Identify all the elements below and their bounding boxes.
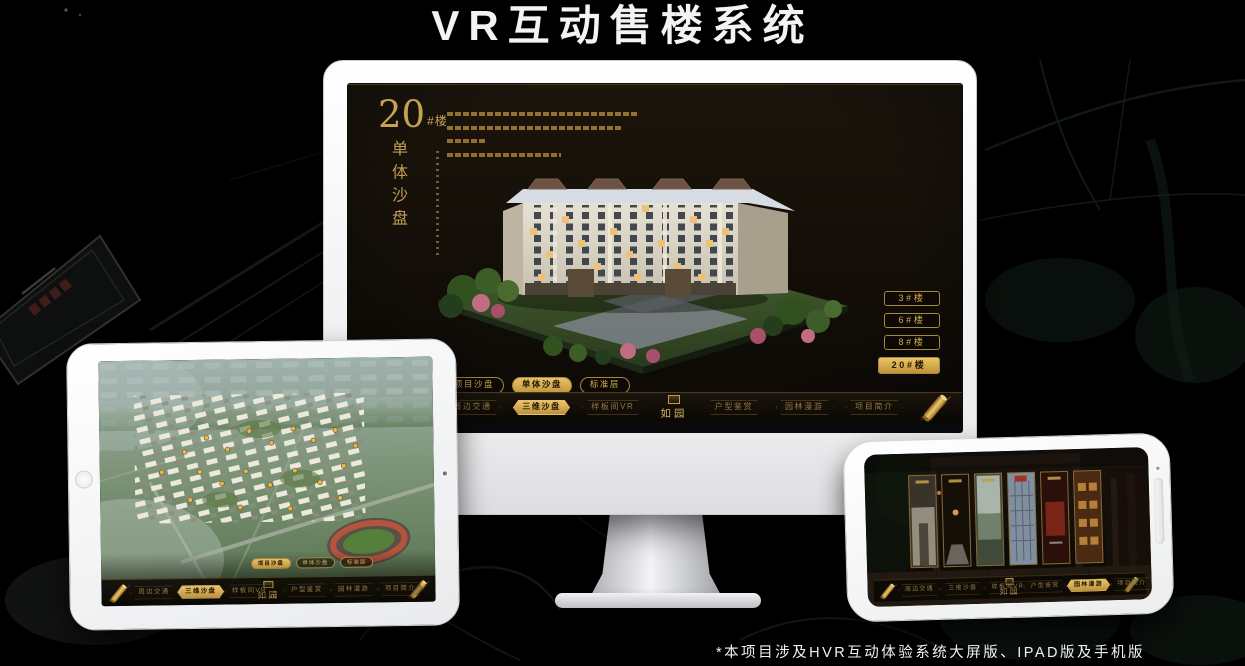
page: VR互动售楼系统 20 #楼 单体沙盘 [0,0,1245,666]
scroll-menu-icon[interactable] [878,583,898,600]
nav-item[interactable]: 项目简介 [1110,577,1152,591]
description-line [447,139,487,143]
sand-table-viewport[interactable] [403,141,873,393]
hero-subtitle: 单体沙盘 [386,140,410,258]
logo-seal-icon [668,395,679,404]
tablet-home-button[interactable] [75,470,93,488]
phone-camera-icon [1156,467,1159,470]
hero-vertical-ornament [436,151,439,259]
phone-device: 周边交通 三维沙盘 样板间VR 如园 [843,432,1175,622]
tablet-screen[interactable]: 项目沙盘 单体沙盘 标准层 周边交通 [98,357,435,607]
nav-item[interactable]: 周边交通 [130,586,177,600]
nav-item[interactable]: 三维沙盘 [513,400,570,416]
nav-item[interactable]: 周边交通 [898,583,942,597]
description-text-lines [447,112,639,166]
nav-item[interactable]: 项目简介 [846,400,903,416]
monitor-stand-base [555,593,761,608]
building-hero-title: 20 #楼 单体沙盘 [378,97,448,258]
floor-button-list: 3#楼 6#楼 8#楼 20#楼 [878,291,940,374]
nav-item[interactable]: 户型鉴赏 [283,583,330,597]
nav-item[interactable]: 户型鉴赏 [705,400,762,416]
view-tab[interactable]: 标准层 [340,556,373,568]
gallery-panel [942,474,972,567]
building-number: 20 [378,97,425,132]
scroll-menu-icon[interactable] [916,394,954,422]
gallery-panel [974,473,1004,566]
floor-button[interactable]: 20#楼 [878,357,940,374]
tablet-device: 项目沙盘 单体沙盘 标准层 周边交通 [66,338,460,630]
tablet-camera-icon [443,471,447,475]
gallery-panel [909,475,939,568]
description-line [447,112,639,116]
nav-item[interactable]: 样板间VR [224,584,275,598]
tablet-bottom-nav: 周边交通 三维沙盘 样板间VR 如园 [101,575,435,607]
description-line [447,153,561,157]
monitor-stand-neck [589,509,723,599]
phone-side-capsule [1154,478,1165,544]
nav-item[interactable]: 园林漫游 [330,583,377,597]
scroll-menu-icon[interactable] [106,583,130,602]
view-tab[interactable]: 单体沙盘 [296,557,336,569]
nav-item[interactable]: 三维沙盘 [177,585,224,599]
gallery-panel [1040,471,1070,564]
nav-item[interactable]: 三维沙盘 [941,582,985,596]
gallery-panel [1073,470,1103,563]
building-number-suffix: #楼 [427,112,448,129]
nav-item[interactable]: 项目简介 [377,582,424,596]
nav-item[interactable]: 户型鉴赏 [1023,580,1067,594]
phone-screen[interactable]: 周边交通 三维沙盘 样板间VR 如园 [864,447,1152,607]
view-tab[interactable]: 项目沙盘 [251,558,291,570]
floor-button[interactable]: 3#楼 [884,291,940,306]
floor-button[interactable]: 8#楼 [884,335,940,350]
floor-button[interactable]: 6#楼 [884,313,940,328]
page-title: VR互动售楼系统 [0,0,1245,53]
description-line [447,126,623,130]
gallery-panel [1007,472,1037,565]
ruyuan-logo[interactable]: 如园 [656,395,693,420]
tablet-view-tab-list: 项目沙盘 单体沙盘 标准层 [251,556,373,569]
nav-item[interactable]: 园林漫游 [776,400,833,416]
footnote: *本项目涉及HVR互动体验系统大屏版、IPAD版及手机版 [716,641,1145,662]
nav-item[interactable]: 样板间VR [582,400,644,416]
nav-item[interactable]: 园林漫游 [1067,578,1111,592]
